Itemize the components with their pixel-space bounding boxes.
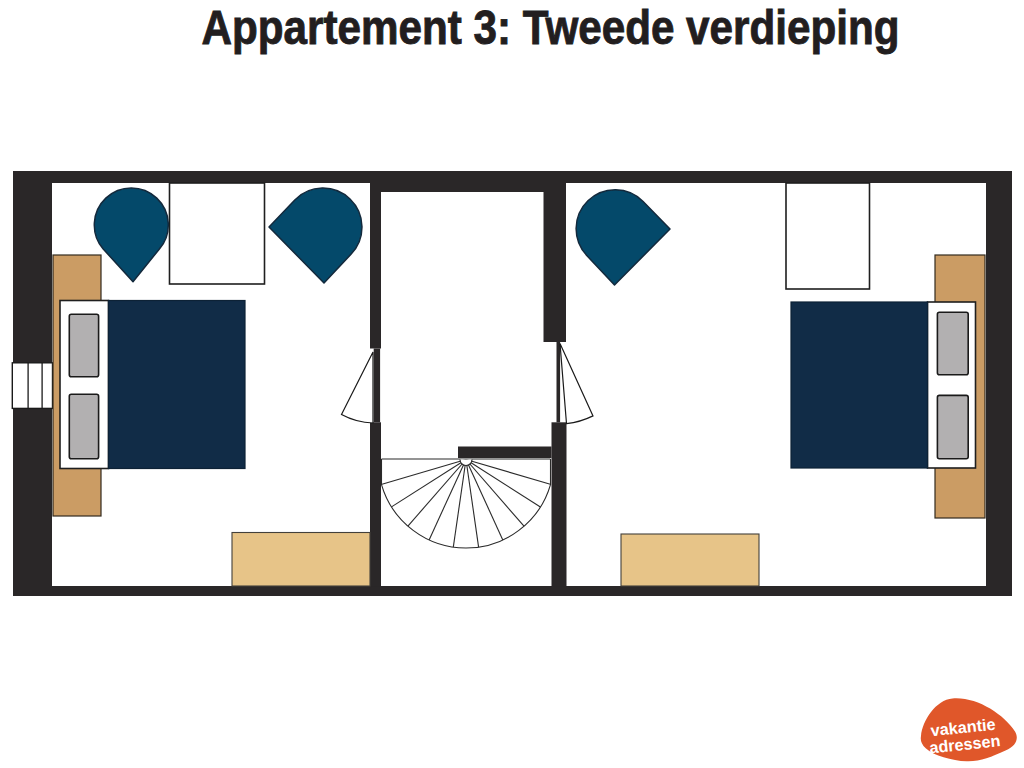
svg-text:Appartement 3: Tweede verdiepi: Appartement 3: Tweede verdieping xyxy=(202,1,900,54)
